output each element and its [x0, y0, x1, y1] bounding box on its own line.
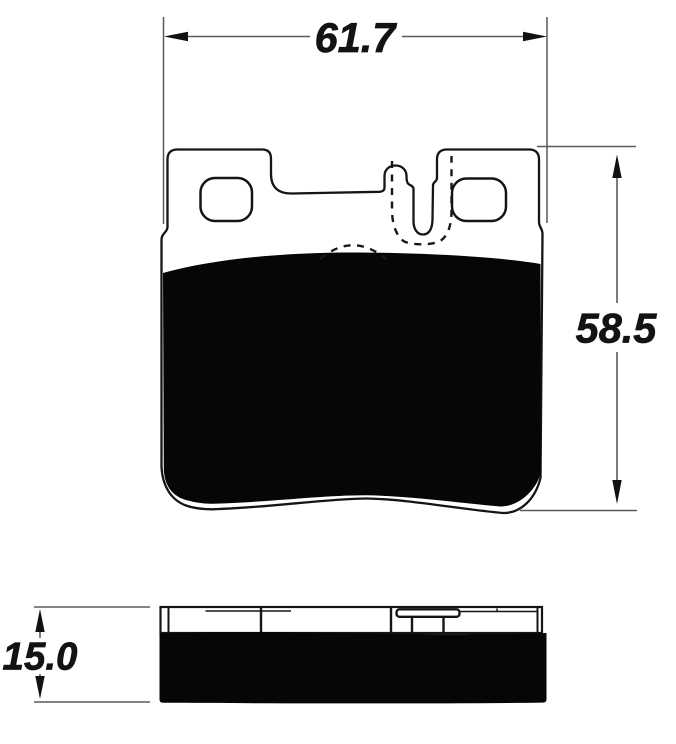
svg-text:61.7: 61.7: [315, 14, 398, 61]
svg-text:58.5: 58.5: [576, 305, 658, 352]
svg-text:15.0: 15.0: [3, 636, 79, 679]
